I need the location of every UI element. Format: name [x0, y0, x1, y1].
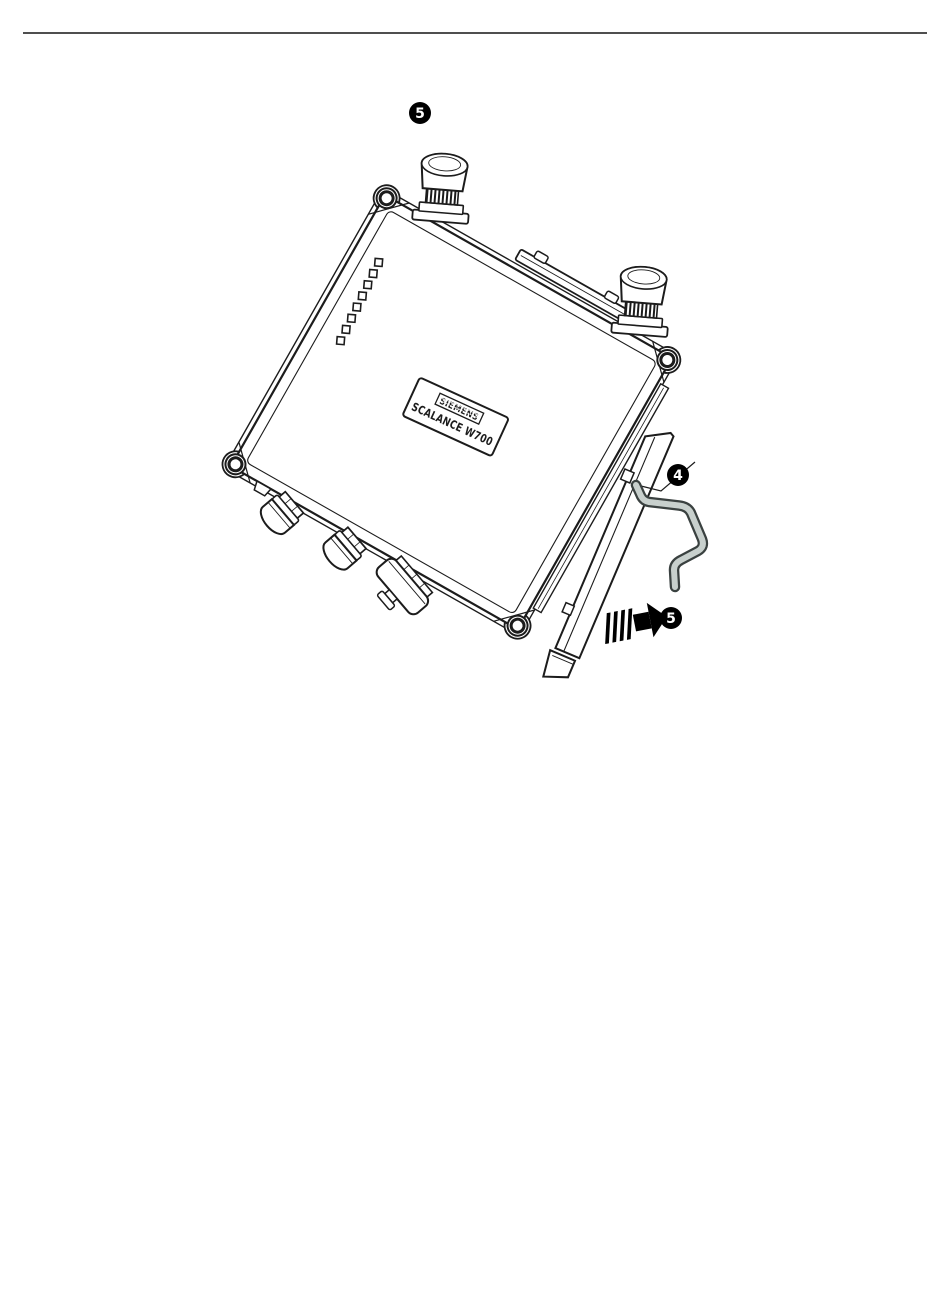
- led-indicator: [364, 281, 372, 289]
- led-indicator: [337, 337, 345, 345]
- direction-arrow: [599, 600, 670, 647]
- speed-stripe: [620, 610, 625, 642]
- callout-5-slide: 5: [660, 607, 682, 629]
- arrow-shaft: [633, 612, 652, 632]
- callout-4-clip: 4: [667, 464, 689, 486]
- led-indicator: [369, 270, 377, 278]
- led-indicator: [342, 325, 350, 333]
- manual-page: SIEMENS SCALANCE W700: [0, 0, 950, 1301]
- antenna-connector-right: [611, 265, 672, 337]
- speed-stripe: [627, 608, 632, 640]
- led-indicator: [375, 258, 383, 266]
- callout-number: 5: [666, 611, 676, 627]
- antenna-connector-left: [412, 152, 473, 224]
- led-indicator: [347, 314, 355, 322]
- callout-number: 5: [415, 106, 425, 122]
- callout-number: 4: [673, 468, 683, 484]
- arrow-speed-stripes: [605, 608, 632, 644]
- mounting-figure: SIEMENS SCALANCE W700: [0, 0, 950, 760]
- speed-stripe: [612, 611, 617, 643]
- scalance-device: SIEMENS SCALANCE W700: [196, 123, 721, 682]
- spring-clip: [636, 485, 703, 587]
- led-indicator: [358, 292, 366, 300]
- callout-5-top: 5: [409, 102, 431, 124]
- led-indicator: [353, 303, 361, 311]
- speed-stripe: [605, 612, 610, 644]
- rail-end-cap: [540, 650, 575, 685]
